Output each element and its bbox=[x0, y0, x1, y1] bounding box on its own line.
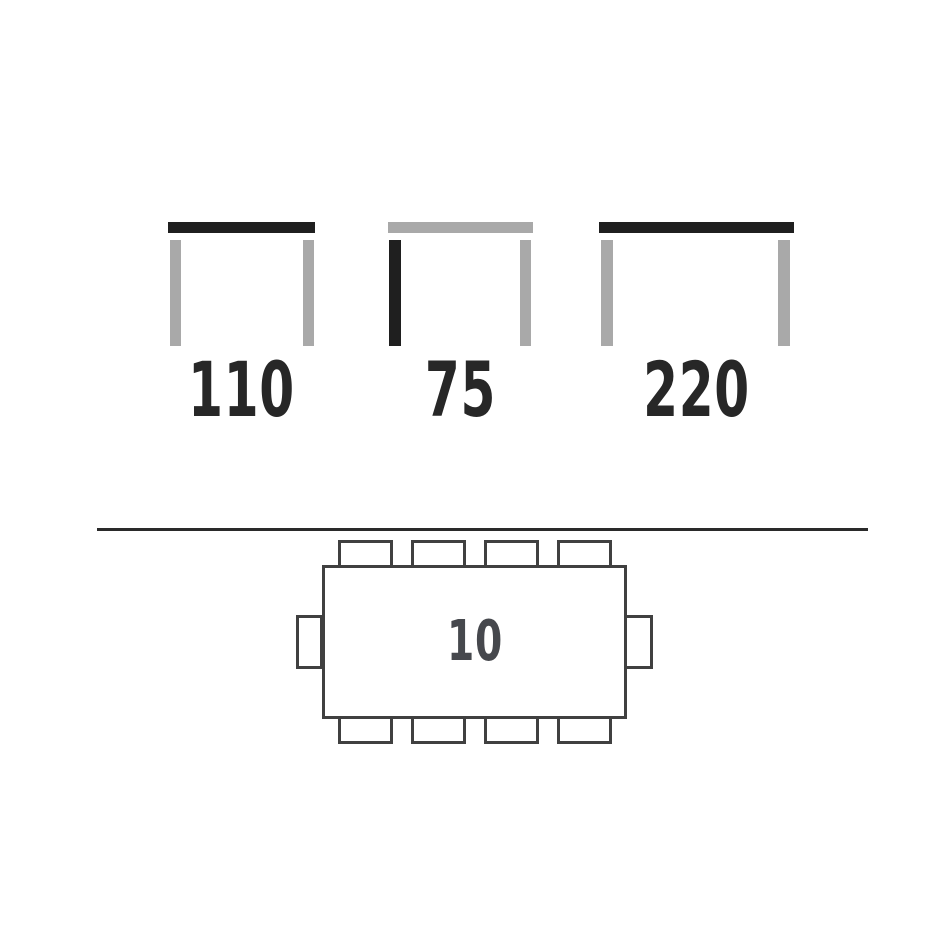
tabletop-bar-icon bbox=[168, 222, 315, 233]
chair-top-1 bbox=[338, 540, 393, 568]
section-divider bbox=[97, 528, 868, 531]
tabletop-bar-icon bbox=[388, 222, 533, 233]
dimension-diagram: 110 75 220 bbox=[0, 0, 950, 950]
chair-top-2 bbox=[411, 540, 466, 568]
table-top-view: 10 bbox=[322, 565, 627, 719]
chair-bottom-2 bbox=[411, 716, 466, 744]
dimension-label: 220 bbox=[632, 352, 761, 428]
table-leg-right-icon bbox=[778, 240, 790, 346]
dimension-label: 110 bbox=[180, 352, 303, 428]
table-leg-right-icon bbox=[520, 240, 531, 346]
chair-bottom-4 bbox=[557, 716, 612, 744]
chair-bottom-3 bbox=[484, 716, 539, 744]
tabletop-bar-icon bbox=[599, 222, 794, 233]
table-leg-right-icon bbox=[303, 240, 314, 346]
chair-left bbox=[296, 615, 323, 669]
chair-bottom-1 bbox=[338, 716, 393, 744]
chair-right bbox=[624, 615, 653, 669]
table-leg-left-icon bbox=[170, 240, 181, 346]
chair-top-4 bbox=[557, 540, 612, 568]
table-leg-left-icon bbox=[601, 240, 613, 346]
chair-top-3 bbox=[484, 540, 539, 568]
seat-count-label: 10 bbox=[447, 614, 503, 670]
dimension-label: 75 bbox=[399, 352, 521, 428]
table-leg-left-icon bbox=[389, 240, 401, 346]
